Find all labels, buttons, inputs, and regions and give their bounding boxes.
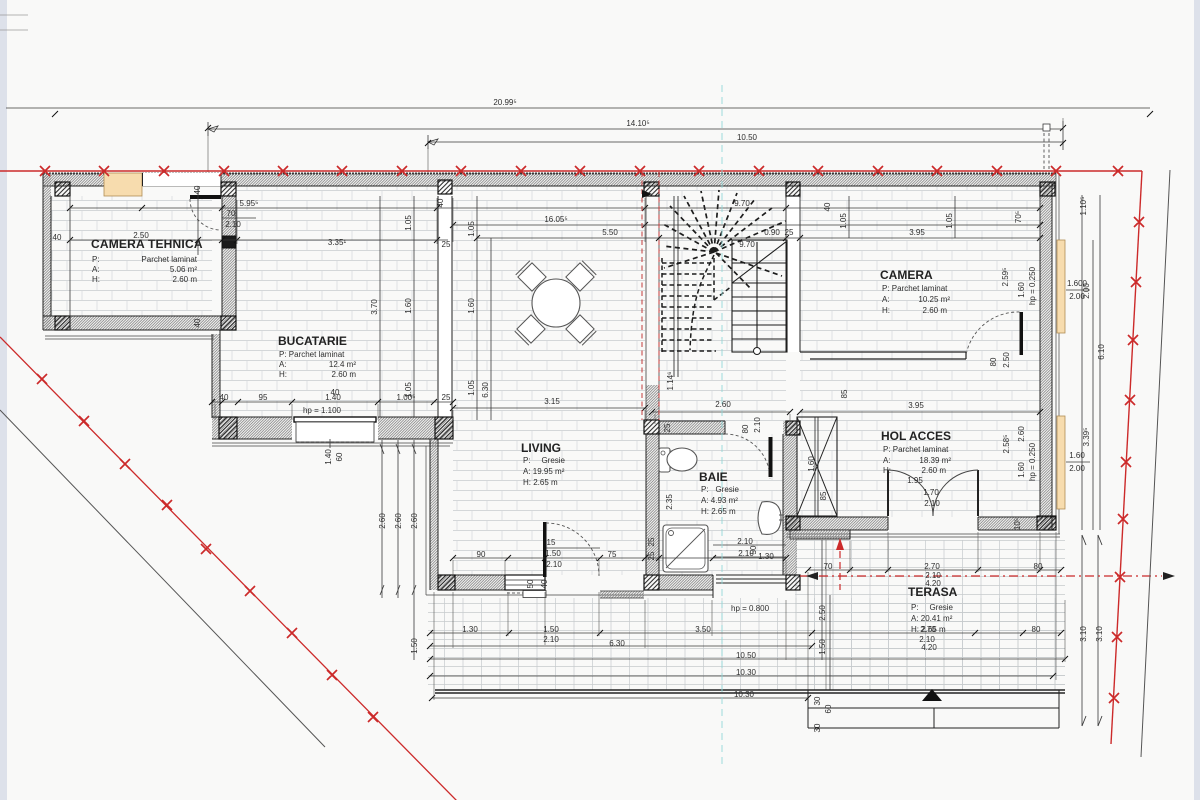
svg-text:25: 25 [442, 240, 451, 249]
svg-text:50: 50 [749, 545, 758, 554]
svg-text:1.05: 1.05 [467, 380, 476, 396]
svg-text:3.15: 3.15 [544, 397, 560, 406]
svg-text:4.20: 4.20 [925, 579, 941, 588]
svg-text:2.50: 2.50 [818, 605, 827, 621]
svg-text:P:: P: [701, 485, 709, 494]
svg-text:30: 30 [813, 723, 822, 732]
svg-text:A:: A: [882, 295, 890, 304]
svg-text:1.05: 1.05 [839, 213, 848, 229]
svg-text:2.50: 2.50 [1002, 352, 1011, 368]
svg-text:LIVING: LIVING [521, 441, 561, 455]
svg-text:10.30: 10.30 [736, 668, 757, 677]
svg-text:H:: H: [92, 275, 100, 284]
svg-text:H: 2.65 m: H: 2.65 m [701, 507, 736, 516]
svg-text:3.10: 3.10 [1079, 626, 1088, 642]
svg-text:80: 80 [741, 424, 750, 433]
svg-text:2.60: 2.60 [378, 513, 387, 529]
svg-text:HOL ACCES: HOL ACCES [881, 429, 951, 443]
svg-text:40: 40 [220, 393, 229, 402]
svg-text:1.50: 1.50 [410, 638, 419, 654]
svg-text:2.10: 2.10 [924, 499, 940, 508]
svg-text:40: 40 [823, 202, 832, 211]
svg-text:1.30: 1.30 [462, 625, 478, 634]
svg-text:1.05: 1.05 [404, 382, 413, 398]
svg-text:80: 80 [989, 357, 998, 366]
svg-text:2.10: 2.10 [543, 635, 559, 644]
svg-text:90: 90 [477, 550, 486, 559]
svg-text:H: 2.65 m: H: 2.65 m [523, 478, 558, 487]
svg-text:2.35: 2.35 [665, 494, 674, 510]
svg-text:1.70: 1.70 [923, 488, 939, 497]
svg-text:75: 75 [608, 550, 617, 559]
svg-text:H:: H: [883, 466, 891, 475]
svg-text:2.70: 2.70 [920, 625, 936, 634]
svg-text:2.59⁵: 2.59⁵ [1001, 268, 1010, 287]
svg-text:95: 95 [259, 393, 268, 402]
svg-text:3.10: 3.10 [1095, 626, 1104, 642]
svg-text:2.50: 2.50 [133, 231, 149, 240]
svg-text:14.10⁵: 14.10⁵ [626, 119, 649, 128]
svg-text:40: 40 [193, 185, 202, 194]
svg-text:25: 25 [647, 537, 656, 546]
svg-text:A: 4.93 m²: A: 4.93 m² [701, 496, 738, 505]
svg-text:1.40: 1.40 [324, 449, 333, 465]
svg-text:2.58⁵: 2.58⁵ [1002, 435, 1011, 454]
svg-text:1.50: 1.50 [543, 625, 559, 634]
svg-text:3.39⁵: 3.39⁵ [1082, 428, 1091, 447]
svg-text:3.95: 3.95 [908, 401, 924, 410]
svg-text:12.4 m²: 12.4 m² [329, 360, 356, 369]
svg-text:1.10⁵: 1.10⁵ [1079, 197, 1088, 216]
svg-text:9.70: 9.70 [739, 240, 755, 249]
svg-text:3.95: 3.95 [909, 228, 925, 237]
svg-text:50: 50 [526, 579, 535, 588]
svg-text:80: 80 [1032, 625, 1041, 634]
svg-text:15: 15 [547, 538, 556, 547]
svg-text:18.39 m²: 18.39 m² [919, 456, 951, 465]
svg-text:1.30: 1.30 [758, 552, 774, 561]
svg-text:10.25 m²: 10.25 m² [918, 295, 950, 304]
svg-text:40: 40 [540, 579, 549, 588]
svg-text:0.90: 0.90 [764, 228, 780, 237]
svg-text:10.30: 10.30 [734, 690, 755, 699]
svg-text:40: 40 [331, 388, 340, 397]
svg-text:P:: P: [523, 456, 531, 465]
svg-text:2.00: 2.00 [1069, 464, 1085, 473]
svg-text:1.60: 1.60 [1017, 462, 1026, 478]
svg-text:20.99⁵: 20.99⁵ [493, 98, 516, 107]
svg-text:1.60: 1.60 [1017, 282, 1026, 298]
svg-text:hp = 1.100: hp = 1.100 [303, 406, 342, 415]
svg-text:1.95: 1.95 [907, 476, 923, 485]
svg-text:2.10: 2.10 [737, 537, 753, 546]
svg-text:70: 70 [824, 562, 833, 571]
svg-text:16.05⁵: 16.05⁵ [544, 215, 567, 224]
svg-text:1.60: 1.60 [1069, 451, 1085, 460]
svg-text:P:: P: [92, 255, 100, 264]
svg-text:hp = 0.800: hp = 0.800 [731, 604, 770, 613]
svg-text:1.05: 1.05 [467, 221, 476, 237]
svg-text:2.60 m: 2.60 m [332, 370, 357, 379]
svg-text:P:: P: [911, 603, 919, 612]
svg-text:9.70: 9.70 [734, 199, 750, 208]
svg-text:2.60: 2.60 [394, 513, 403, 529]
svg-text:6.30: 6.30 [609, 639, 625, 648]
svg-text:P: Parchet laminat: P: Parchet laminat [882, 284, 948, 293]
svg-text:P: Parchet laminat: P: Parchet laminat [279, 350, 345, 359]
svg-text:70⁵: 70⁵ [1014, 211, 1023, 223]
svg-text:2.60: 2.60 [715, 400, 731, 409]
svg-text:2.60: 2.60 [1017, 426, 1026, 442]
svg-text:2.00: 2.00 [1082, 283, 1091, 299]
svg-text:25: 25 [785, 228, 794, 237]
svg-text:Gresie: Gresie [541, 456, 565, 465]
svg-text:25: 25 [663, 423, 672, 432]
svg-text:85: 85 [819, 491, 828, 500]
svg-text:A: 20.41 m²: A: 20.41 m² [911, 614, 953, 623]
svg-text:2.10: 2.10 [546, 560, 562, 569]
svg-text:30: 30 [813, 696, 822, 705]
svg-text:5.06 m²: 5.06 m² [170, 265, 197, 274]
svg-text:P: Parchet laminat: P: Parchet laminat [883, 445, 949, 454]
svg-text:Gresie: Gresie [929, 603, 953, 612]
svg-text:70: 70 [227, 209, 236, 218]
svg-text:60: 60 [335, 452, 344, 461]
svg-text:1.14⁶: 1.14⁶ [666, 372, 675, 391]
svg-text:A:: A: [279, 360, 287, 369]
svg-text:25: 25 [647, 551, 656, 560]
svg-text:2.70: 2.70 [924, 562, 940, 571]
svg-text:1.60: 1.60 [404, 298, 413, 314]
svg-text:Gresie: Gresie [715, 485, 739, 494]
svg-text:40: 40 [193, 318, 202, 327]
svg-text:25: 25 [442, 393, 451, 402]
svg-text:1.60: 1.60 [467, 298, 476, 314]
svg-text:10.50: 10.50 [736, 651, 757, 660]
svg-text:BAIE: BAIE [699, 470, 728, 484]
svg-text:60: 60 [824, 704, 833, 713]
svg-text:40: 40 [53, 233, 62, 242]
svg-text:2.10: 2.10 [225, 220, 241, 229]
svg-text:1.60: 1.60 [807, 456, 816, 472]
svg-text:H:: H: [882, 306, 890, 315]
svg-text:2.60: 2.60 [410, 513, 419, 529]
svg-text:A:: A: [883, 456, 891, 465]
svg-text:1.50: 1.50 [545, 549, 561, 558]
svg-text:2.10: 2.10 [753, 417, 762, 433]
svg-text:5.50: 5.50 [602, 228, 618, 237]
svg-text:A: 19.95 m²: A: 19.95 m² [523, 467, 565, 476]
svg-text:3.35¹: 3.35¹ [328, 238, 347, 247]
svg-text:10.50: 10.50 [737, 133, 758, 142]
svg-text:H:: H: [279, 370, 287, 379]
svg-text:80: 80 [1034, 562, 1043, 571]
svg-text:5.95⁵: 5.95⁵ [240, 199, 259, 208]
svg-text:1.05: 1.05 [404, 215, 413, 231]
svg-text:2.60 m: 2.60 m [173, 275, 198, 284]
svg-text:10⁵: 10⁵ [1013, 518, 1022, 530]
svg-text:3.50: 3.50 [695, 625, 711, 634]
svg-text:2.60 m: 2.60 m [923, 306, 948, 315]
svg-text:85: 85 [840, 389, 849, 398]
svg-text:3.70: 3.70 [370, 299, 379, 315]
svg-text:Parchet laminat: Parchet laminat [141, 255, 197, 264]
svg-text:1.50: 1.50 [818, 639, 827, 655]
svg-text:1.05: 1.05 [945, 213, 954, 229]
svg-text:4.20: 4.20 [921, 643, 937, 652]
svg-text:6.30: 6.30 [481, 382, 490, 398]
svg-text:CAMERA: CAMERA [880, 268, 933, 282]
svg-text:hp = 0.250: hp = 0.250 [1028, 442, 1037, 481]
svg-text:hp = 0.250: hp = 0.250 [1028, 266, 1037, 305]
svg-text:A:: A: [92, 265, 100, 274]
svg-text:6.10: 6.10 [1097, 344, 1106, 360]
svg-text:2.60 m: 2.60 m [922, 466, 947, 475]
svg-text:40: 40 [436, 198, 445, 207]
svg-text:BUCATARIE: BUCATARIE [278, 334, 347, 348]
